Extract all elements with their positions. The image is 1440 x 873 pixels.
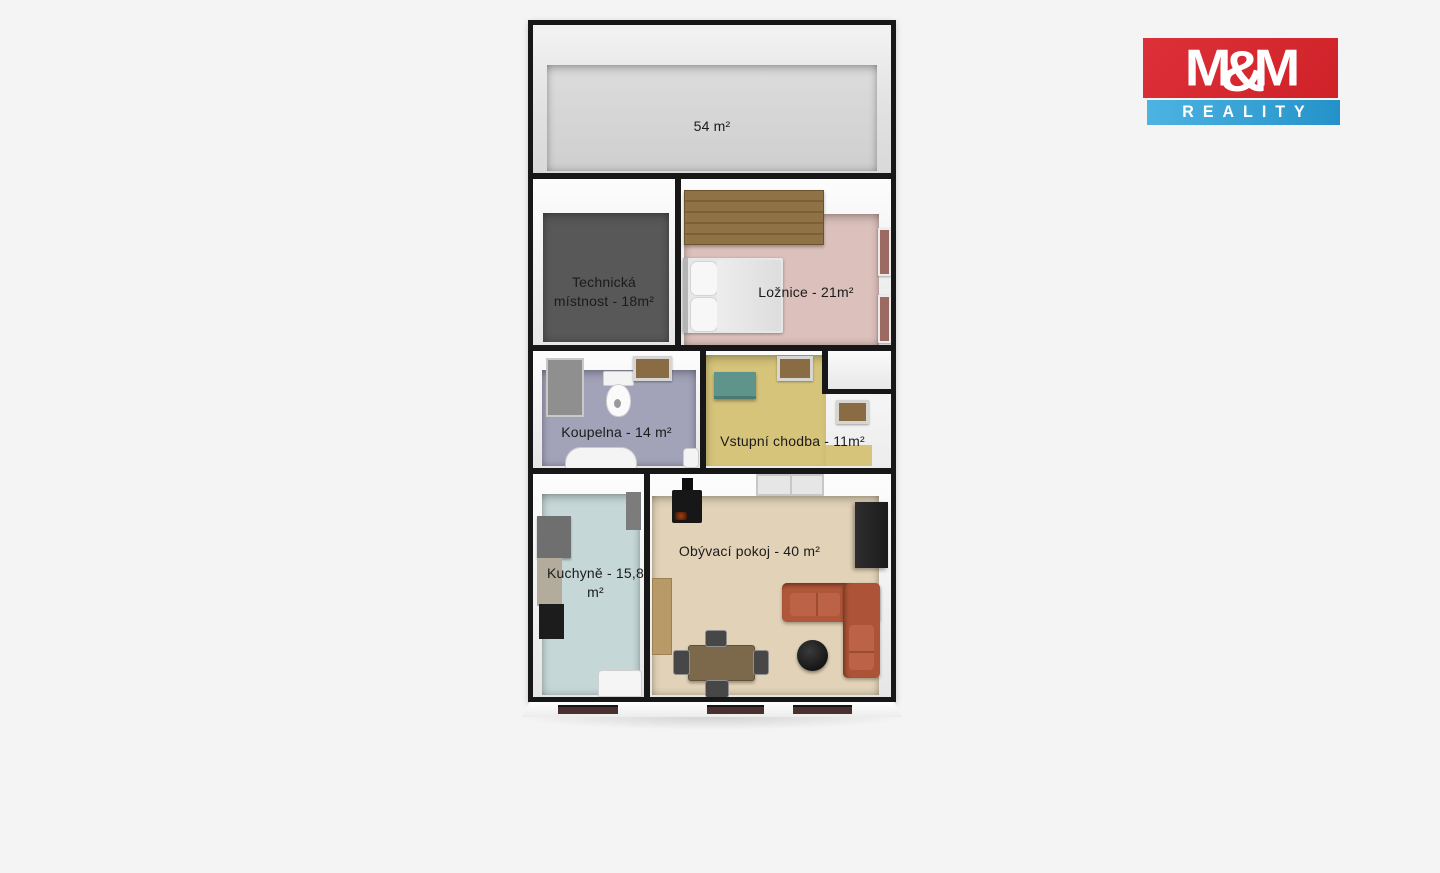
bed-pillow xyxy=(690,297,718,332)
room-bedroom: Ložnice - 21m² xyxy=(681,179,891,345)
dining-chair xyxy=(753,650,769,675)
bed-headboard xyxy=(683,258,688,333)
bookshelf xyxy=(652,578,672,655)
room-attic: 54 m² xyxy=(533,25,891,173)
room-living: Obývací pokoj - 40 m² xyxy=(650,474,891,697)
wardrobe xyxy=(684,190,824,245)
room-technical-label: Technická místnost - 18m² xyxy=(549,273,659,311)
kitchen-stove xyxy=(539,604,564,639)
dining-table xyxy=(688,645,755,681)
logo-reality-text: REALITY xyxy=(1173,103,1313,122)
room-kitchen: Kuchyně - 15,8 m² xyxy=(533,474,644,697)
logo-ampersand: & xyxy=(1219,42,1265,98)
coffee-table xyxy=(797,640,828,671)
facade-window xyxy=(558,705,618,714)
corner-sofa xyxy=(843,583,880,678)
kitchen-counter xyxy=(537,516,571,558)
floorplan: 54 m² Technická místnost - 18m² Ložnice … xyxy=(528,20,896,702)
dining-chair xyxy=(673,650,690,675)
dining-chair xyxy=(705,680,729,697)
logo-red-box: M & M xyxy=(1143,38,1338,98)
sink xyxy=(683,448,699,468)
facade-window xyxy=(793,705,852,714)
logo-blue-bar: REALITY xyxy=(1147,100,1340,125)
fireplace-glow xyxy=(675,512,687,520)
fireplace-stove xyxy=(672,490,702,523)
room-bathroom: Koupelna - 14 m² xyxy=(533,351,700,468)
building-facade xyxy=(522,702,902,717)
room-technical: Technická místnost - 18m² xyxy=(533,179,675,345)
bedroom-wall-door xyxy=(878,295,891,343)
hall-closet xyxy=(828,351,891,389)
hall-door xyxy=(777,356,813,381)
media-cabinet xyxy=(855,502,888,568)
screenshot-stage: 54 m² Technická místnost - 18m² Ložnice … xyxy=(0,0,1440,873)
room-entrance-hall-label: Vstupní chodba - 11m² xyxy=(706,432,879,451)
dining-chair xyxy=(705,630,727,647)
bathroom-door xyxy=(633,356,672,381)
hall-cabinet xyxy=(714,372,756,399)
shower xyxy=(546,358,584,417)
room-attic-label: 54 m² xyxy=(533,117,891,136)
facade-window xyxy=(707,705,764,714)
kitchen-cabinet xyxy=(626,492,641,530)
entry-door xyxy=(836,400,869,424)
toilet-seat xyxy=(614,399,621,408)
room-kitchen-label: Kuchyně - 15,8 m² xyxy=(547,564,644,602)
bed-pillow xyxy=(690,261,718,296)
room-bathroom-label: Koupelna - 14 m² xyxy=(533,423,700,442)
closet-wall xyxy=(822,389,891,394)
closet-wall xyxy=(822,351,828,394)
mm-reality-logo: M & M REALITY xyxy=(1143,38,1340,127)
room-bedroom-label: Ložnice - 21m² xyxy=(721,283,891,302)
bathtub xyxy=(565,447,637,468)
bedroom-wall-door xyxy=(878,228,891,276)
kitchen-appliance xyxy=(598,670,642,697)
room-living-label: Obývací pokoj - 40 m² xyxy=(650,542,849,561)
living-window xyxy=(756,474,824,496)
room-entrance-hall: Vstupní chodba - 11m² xyxy=(706,351,891,468)
